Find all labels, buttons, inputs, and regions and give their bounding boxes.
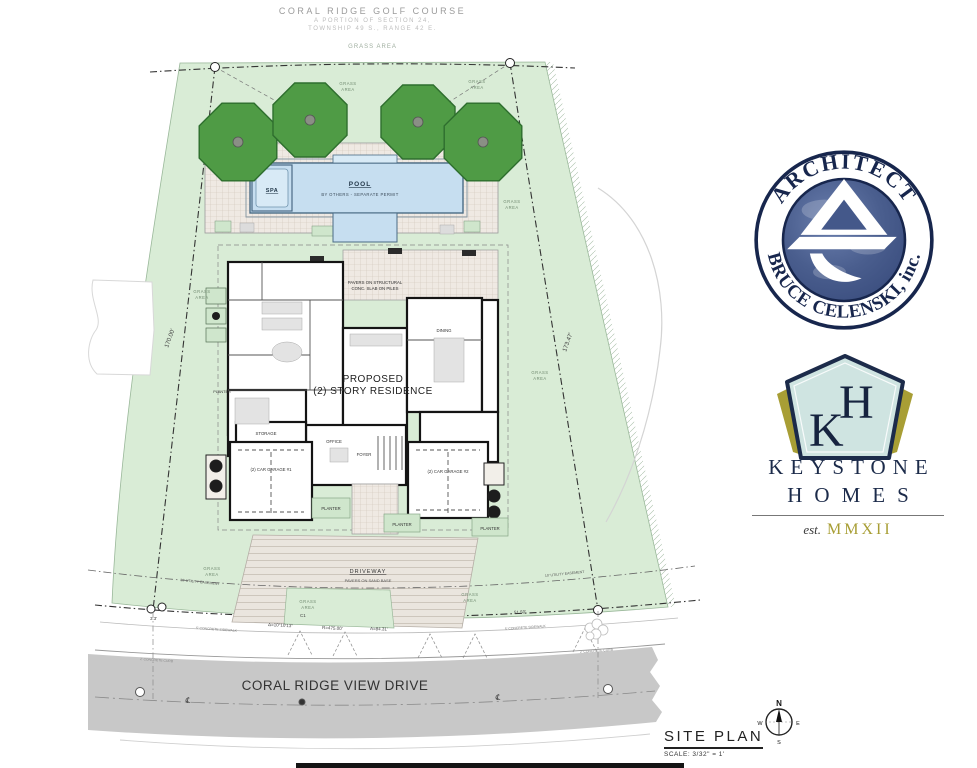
svg-text:AREA: AREA	[463, 598, 476, 603]
planter-label: PLANTER	[321, 506, 340, 511]
sidewalk-label: 5' CONCRETE SIDEWALK	[196, 626, 238, 633]
pool-steps	[333, 213, 397, 242]
sidewalk-label: 5' CONCRETE SIDEWALK	[505, 624, 547, 631]
pool-shelf	[333, 155, 397, 163]
compass-e: E	[796, 721, 800, 727]
storage-label: STORAGE	[256, 431, 277, 436]
pool-label: POOL	[349, 181, 371, 188]
keystone-logo: H K	[765, 352, 925, 467]
driveway-label: DRIVEWAY	[350, 569, 387, 575]
svg-text:GRASS: GRASS	[339, 81, 356, 86]
residence-floorplan: PAVERS ON STRUCTURAL CONC. SLAB ON PILES…	[206, 245, 508, 536]
site-plan-sheet: CORAL RIDGE GOLF COURSE A PORTION OF SEC…	[0, 0, 977, 768]
sheet-title: SITE PLAN	[664, 728, 763, 749]
grass-area-label: GRASSAREA	[203, 566, 220, 577]
svg-text:GRASS: GRASS	[299, 599, 316, 604]
svg-text:AREA: AREA	[470, 85, 483, 90]
grass-area-label: GRASSAREA	[531, 370, 548, 381]
svg-text:GRASS: GRASS	[503, 199, 520, 204]
pool-note: BY OTHERS - SEPARATE PERMIT	[321, 192, 398, 197]
svg-text:AREA: AREA	[533, 376, 546, 381]
planter-label: PLANTER	[392, 522, 411, 527]
dim-front: 51.50'	[514, 609, 527, 615]
driveway-note: PAVERS ON SAND BASE	[345, 578, 392, 583]
planter-label: PLANTER	[213, 390, 231, 394]
grass-area-label: GRASSAREA	[503, 199, 520, 210]
keystone-wordmark: KEYSTONE HOMES est.MMXII	[748, 455, 948, 539]
grass-area-label: GRASSAREA	[193, 289, 210, 300]
established-line: est.MMXII	[748, 521, 948, 539]
est-year: MMXII	[827, 521, 893, 538]
pavers-note-2: CONC. SLAB ON PILES	[351, 286, 398, 291]
road-name: CORAL RIDGE VIEW DRIVE	[242, 678, 429, 693]
svg-text:GRASS: GRASS	[531, 370, 548, 375]
curve-id: C1	[300, 613, 306, 618]
planter-label: PLANTER	[480, 526, 499, 531]
compass-n: N	[776, 699, 782, 708]
sheet-scale: SCALE: 3/32" = 1'	[664, 751, 794, 758]
divider	[752, 515, 944, 516]
centerline-symbol: ℄	[495, 693, 501, 702]
shrub-icon	[585, 619, 608, 640]
est-label: est.	[803, 522, 821, 537]
architect-logo: ARCHITECT BRUCE CELENSKI, inc.	[752, 148, 936, 332]
homes-name: HOMES	[748, 483, 948, 508]
grass-area-label: GRASSAREA	[339, 81, 356, 92]
driveway: DRIVEWAY PAVERS ON SAND BASE	[232, 535, 478, 628]
dining-label: DINING	[436, 328, 452, 333]
svg-text:GRASS: GRASS	[193, 289, 210, 294]
monogram-h: H	[839, 376, 874, 429]
compass-s: S	[777, 740, 781, 746]
grass-area-label: GRASSAREA	[299, 599, 316, 610]
foyer-label: FOYER	[357, 452, 372, 457]
grass-area-label: GRASSAREA	[461, 592, 478, 603]
road: CORAL RIDGE VIEW DRIVE ℄ ℄ 2' CONCRETE C…	[88, 611, 662, 749]
sand-bunker	[89, 280, 154, 375]
svg-text:AREA: AREA	[505, 205, 518, 210]
svg-text:AREA: AREA	[195, 295, 208, 300]
apron-joints	[288, 628, 597, 658]
garage1-label: (2) CAR GARAGE #1	[250, 467, 292, 472]
svg-text:AREA: AREA	[205, 572, 218, 577]
compass-w: W	[757, 721, 763, 727]
grass-area-label: GRASSAREA	[468, 79, 485, 90]
monogram-k: K	[809, 404, 844, 457]
svg-text:AREA: AREA	[341, 87, 354, 92]
sheet-edge	[296, 763, 684, 768]
dim-radius: R=475.00'	[322, 625, 343, 631]
svg-text:GRASS: GRASS	[203, 566, 220, 571]
centerline-symbol: ℄	[185, 696, 191, 705]
dim-arc: A=84.31'	[370, 626, 388, 632]
dim-delta: Δ=10°10'13"	[268, 622, 294, 628]
residence-label-1: PROPOSED	[343, 374, 404, 385]
dim-corner: 3.3'	[150, 616, 157, 621]
spa-label: SPA	[266, 188, 278, 194]
north-arrow: N S W E	[755, 698, 803, 748]
svg-text:AREA: AREA	[301, 605, 314, 610]
svg-text:GRASS: GRASS	[468, 79, 485, 84]
office-label: OFFICE	[326, 439, 342, 444]
garage2-label: (2) CAR GARAGE #2	[427, 469, 469, 474]
residence-label-2: (2) STORY RESIDENCE	[313, 386, 433, 397]
svg-text:GRASS: GRASS	[461, 592, 478, 597]
keystone-name: KEYSTONE	[748, 455, 948, 480]
pavers-note-1: PAVERS ON STRUCTURAL	[348, 280, 403, 285]
